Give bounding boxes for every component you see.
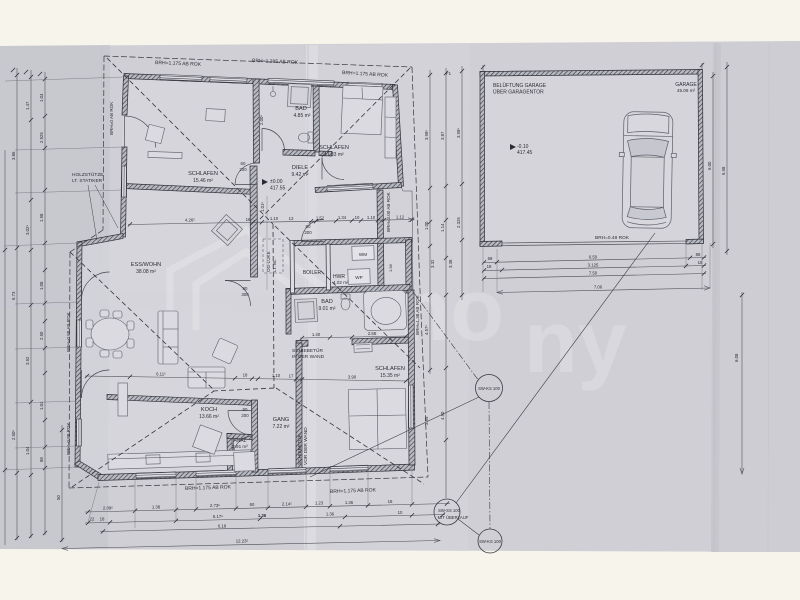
svg-text:6.98: 6.98 <box>721 166 726 175</box>
svg-text:6.00: 6.00 <box>707 161 712 170</box>
svg-text:VOR DER WAND: VOR DER WAND <box>303 427 309 465</box>
svg-text:6.18: 6.18 <box>218 524 227 529</box>
svg-text:1.36: 1.36 <box>326 511 335 516</box>
svg-text:2.525: 2.525 <box>39 132 44 143</box>
svg-text:3.92: 3.92 <box>25 356 30 365</box>
svg-text:60: 60 <box>250 502 255 507</box>
svg-text:2.58: 2.58 <box>368 331 377 336</box>
svg-text:SCHLAFEN: SCHLAFEN <box>188 171 218 177</box>
svg-text:18: 18 <box>100 516 105 521</box>
svg-text:4.02 m²: 4.02 m² <box>333 280 349 285</box>
svg-text:1.23: 1.23 <box>315 501 324 506</box>
svg-text:6.08: 6.08 <box>734 353 739 362</box>
svg-text:IN DER WAND: IN DER WAND <box>292 354 325 360</box>
svg-text:11.33 m²: 11.33 m² <box>324 152 344 158</box>
svg-text:1.98: 1.98 <box>39 213 44 222</box>
svg-text:1.36: 1.36 <box>258 513 267 518</box>
svg-text:2.09⁵: 2.09⁵ <box>103 505 113 510</box>
svg-text:7.50: 7.50 <box>589 271 598 276</box>
svg-text:80: 80 <box>243 286 248 291</box>
svg-text:38.08 m²: 38.08 m² <box>136 269 156 275</box>
svg-text:17: 17 <box>289 373 294 378</box>
svg-text:88: 88 <box>39 457 44 462</box>
svg-text:OG-LUKE: OG-LUKE <box>266 251 271 272</box>
svg-text:1.04: 1.04 <box>39 93 44 102</box>
svg-text:18: 18 <box>246 217 251 222</box>
svg-text:BRH=0.88 ROK: BRH=0.88 ROK <box>66 422 71 455</box>
svg-text:WM: WM <box>359 252 367 257</box>
svg-text:1.52: 1.52 <box>316 216 325 221</box>
svg-text:1.14: 1.14 <box>440 223 445 232</box>
svg-text:±0.00: ±0.00 <box>270 179 283 185</box>
svg-text:3.02⁵: 3.02⁵ <box>25 225 30 235</box>
svg-text:50: 50 <box>56 495 61 500</box>
svg-text:6.73: 6.73 <box>11 291 16 300</box>
svg-text:SCHLAFEN: SCHLAFEN <box>319 145 349 151</box>
svg-text:BAD: BAD <box>295 106 307 112</box>
svg-text:88: 88 <box>696 252 701 257</box>
svg-text:3.90: 3.90 <box>348 374 357 379</box>
svg-text:2.00⁵: 2.00⁵ <box>259 115 264 125</box>
svg-text:13.66 m²: 13.66 m² <box>199 414 219 420</box>
svg-text:SW-KS 100: SW-KS 100 <box>478 386 500 391</box>
svg-text:18: 18 <box>388 499 393 504</box>
svg-text:3.98⁵: 3.98⁵ <box>456 128 461 138</box>
svg-text:3.38: 3.38 <box>448 259 453 268</box>
svg-text:1.10: 1.10 <box>367 215 376 220</box>
svg-text:1.40: 1.40 <box>312 332 321 337</box>
svg-text:4.50: 4.50 <box>440 411 445 420</box>
svg-text:68: 68 <box>488 256 493 261</box>
svg-text:6.11⁵: 6.11⁵ <box>156 371 166 376</box>
svg-text:BRH=0.48 ROK: BRH=0.48 ROK <box>595 235 630 241</box>
svg-text:13: 13 <box>289 216 294 221</box>
svg-text:SW-KS 100: SW-KS 100 <box>479 539 501 544</box>
svg-text:3.32: 3.32 <box>430 259 435 268</box>
svg-text:WP: WP <box>355 275 362 280</box>
svg-text:BRH=3.00 AB ROK: BRH=3.00 AB ROK <box>386 191 391 232</box>
svg-text:1.34: 1.34 <box>338 215 347 220</box>
svg-text:1.47: 1.47 <box>25 101 30 110</box>
svg-text:SCHIEBETÜR: SCHIEBETÜR <box>292 347 323 354</box>
svg-text:6.50: 6.50 <box>589 255 598 260</box>
svg-text:7.22 m²: 7.22 m² <box>273 424 290 430</box>
svg-text:4.57⁵: 4.57⁵ <box>424 325 429 335</box>
svg-text:1.10: 1.10 <box>272 373 281 378</box>
svg-text:3.95: 3.95 <box>424 416 429 425</box>
svg-text:9.01 m²: 9.01 m² <box>319 306 336 312</box>
svg-text:BOILER: BOILER <box>303 270 322 276</box>
svg-text:22: 22 <box>90 517 95 522</box>
svg-text:60: 60 <box>241 161 246 166</box>
svg-text:HOLZSTÜTZE: HOLZSTÜTZE <box>72 171 103 178</box>
svg-text:10: 10 <box>355 215 360 220</box>
svg-text:DIELE: DIELE <box>292 165 308 171</box>
svg-text:80: 80 <box>243 407 248 412</box>
svg-text:2.50⁵: 2.50⁵ <box>11 430 16 440</box>
svg-text:BELÜFTUNG GARAGE: BELÜFTUNG GARAGE <box>493 82 547 89</box>
svg-text:200: 200 <box>304 230 312 235</box>
svg-text:KOCH: KOCH <box>201 407 217 413</box>
svg-text:5.17⁵: 5.17⁵ <box>213 514 223 519</box>
svg-text:200: 200 <box>241 413 249 418</box>
svg-text:1.58: 1.58 <box>388 263 393 272</box>
svg-text:417.55: 417.55 <box>270 186 286 192</box>
svg-text:15.46 m²: 15.46 m² <box>193 178 213 184</box>
svg-text:ESS/WOHN: ESS/WOHN <box>131 262 161 268</box>
svg-text:1.38: 1.38 <box>152 504 161 509</box>
svg-text:1.08: 1.08 <box>39 281 44 290</box>
svg-text:2.91 m²: 2.91 m² <box>232 444 248 449</box>
svg-text:BAD: BAD <box>321 299 333 305</box>
svg-text:2.73⁵: 2.73⁵ <box>210 503 220 508</box>
svg-text:1.12: 1.12 <box>396 214 405 219</box>
svg-text:1.36: 1.36 <box>345 500 354 505</box>
svg-text:BRH=0 AB ROK: BRH=0 AB ROK <box>109 101 114 135</box>
svg-text:300: 300 <box>241 292 249 297</box>
svg-text:2.325: 2.325 <box>456 217 461 228</box>
svg-text:LT. STATIKER: LT. STATIKER <box>72 178 103 184</box>
svg-text:4.26⁵: 4.26⁵ <box>185 218 195 223</box>
svg-text:SCHLAFEN: SCHLAFEN <box>375 366 405 372</box>
svg-text:45.06 m²: 45.06 m² <box>677 88 696 93</box>
svg-text:1.10: 1.10 <box>270 216 279 221</box>
svg-text:1.01⁵: 1.01⁵ <box>260 202 265 212</box>
svg-text:BRH=0.88 AB ROK: BRH=0.88 AB ROK <box>66 311 71 352</box>
svg-text:10: 10 <box>398 510 403 515</box>
svg-text:LT. BL: LT. BL <box>272 259 277 272</box>
svg-text:SW-SS 100: SW-SS 100 <box>438 508 460 513</box>
svg-text:18: 18 <box>487 264 492 269</box>
svg-text:F1: F1 <box>446 71 452 76</box>
svg-text:4.85 m²: 4.85 m² <box>294 113 311 119</box>
svg-text:7.06: 7.06 <box>594 285 603 290</box>
svg-text:417.45: 417.45 <box>517 150 533 156</box>
svg-text:ÜBER GARAGENTOR: ÜBER GARAGENTOR <box>493 89 544 96</box>
svg-text:3.87: 3.87 <box>440 131 445 140</box>
svg-text:18: 18 <box>243 373 248 378</box>
svg-text:3.86: 3.86 <box>11 151 16 160</box>
svg-text:3.98⁵: 3.98⁵ <box>424 130 429 140</box>
svg-text:1.00: 1.00 <box>424 221 429 230</box>
svg-text:15.35 m²: 15.35 m² <box>380 373 400 379</box>
svg-text:3.125: 3.125 <box>588 263 599 268</box>
svg-text:GANG: GANG <box>273 417 289 423</box>
svg-text:2.50: 2.50 <box>39 331 44 340</box>
svg-text:200: 200 <box>239 167 247 172</box>
svg-text:80: 80 <box>306 224 311 229</box>
svg-text:SCHIEBETÜR: SCHIEBETÜR <box>296 434 303 465</box>
svg-text:12.23⁵: 12.23⁵ <box>236 539 249 544</box>
svg-text:2.14⁵: 2.14⁵ <box>282 501 292 506</box>
